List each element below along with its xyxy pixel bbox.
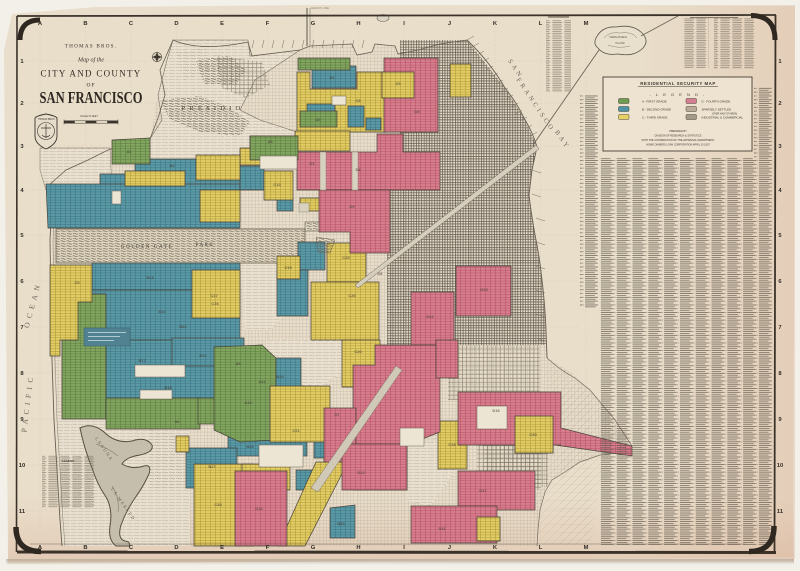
svg-text:D - FOURTH GRADE: D - FOURTH GRADE bbox=[702, 100, 731, 104]
svg-text:A5: A5 bbox=[315, 117, 321, 122]
svg-text:B18: B18 bbox=[164, 385, 172, 390]
svg-text:C13: C13 bbox=[273, 182, 281, 187]
svg-text:PREPARED BY: PREPARED BY bbox=[669, 130, 687, 133]
svg-text:11: 11 bbox=[777, 509, 784, 515]
svg-text:L: L bbox=[539, 545, 543, 551]
svg-text:D7: D7 bbox=[334, 412, 340, 417]
svg-text:10: 10 bbox=[19, 463, 25, 469]
svg-text:GRANT LINE: GRANT LINE bbox=[311, 6, 329, 10]
svg-text:B17: B17 bbox=[138, 358, 146, 363]
svg-text:D: D bbox=[174, 545, 178, 551]
svg-text:(OVER HALF OF AREA): (OVER HALF OF AREA) bbox=[712, 113, 737, 116]
svg-text:D16: D16 bbox=[492, 408, 500, 413]
svg-text:D8: D8 bbox=[355, 167, 361, 172]
svg-text:D12: D12 bbox=[426, 314, 434, 319]
svg-text:D15: D15 bbox=[480, 287, 488, 292]
svg-text:7: 7 bbox=[778, 325, 781, 331]
svg-text:CITY AND COUNTY: CITY AND COUNTY bbox=[41, 69, 142, 79]
svg-text:D10: D10 bbox=[255, 506, 263, 511]
svg-text:B4: B4 bbox=[169, 163, 175, 168]
svg-text:L: L bbox=[539, 21, 543, 27]
svg-text:B: B bbox=[83, 545, 87, 551]
svg-text:H: H bbox=[356, 545, 360, 551]
svg-text:B16: B16 bbox=[158, 309, 166, 314]
svg-text:C19: C19 bbox=[284, 265, 292, 270]
svg-text:PARK: PARK bbox=[196, 243, 214, 248]
svg-text:C9: C9 bbox=[395, 81, 401, 86]
svg-text:THOMAS BROS.: THOMAS BROS. bbox=[65, 44, 117, 50]
svg-text:M: M bbox=[584, 545, 589, 551]
svg-text:C26: C26 bbox=[348, 293, 356, 298]
svg-text:7: 7 bbox=[20, 325, 23, 331]
svg-text:C30: C30 bbox=[529, 432, 537, 437]
svg-text:B26: B26 bbox=[276, 374, 284, 379]
svg-text:B27: B27 bbox=[208, 464, 216, 469]
svg-text:GOLDEN GATE: GOLDEN GATE bbox=[121, 245, 173, 250]
svg-text:INDUSTRIAL & COMMERCIAL: INDUSTRIAL & COMMERCIAL bbox=[702, 116, 744, 120]
svg-text:B33: B33 bbox=[337, 521, 345, 526]
svg-text:A11: A11 bbox=[258, 379, 266, 384]
svg-text:WITH THE COOPERATION OF THE AP: WITH THE COOPERATION OF THE APPRAISAL DE… bbox=[642, 139, 715, 142]
svg-text:B15: B15 bbox=[146, 275, 154, 280]
svg-text:C16: C16 bbox=[211, 301, 219, 306]
svg-text:E: E bbox=[220, 545, 224, 551]
svg-text:G: G bbox=[311, 21, 316, 27]
svg-text:C28: C28 bbox=[448, 442, 456, 447]
svg-text:A3: A3 bbox=[267, 139, 273, 144]
svg-text:11: 11 bbox=[19, 509, 26, 515]
svg-text:M: M bbox=[584, 21, 589, 27]
svg-text:- L E G E N D -: - L E G E N D - bbox=[650, 92, 707, 97]
svg-text:H: H bbox=[356, 21, 360, 27]
svg-text:D1: D1 bbox=[309, 161, 315, 166]
svg-text:D9: D9 bbox=[349, 204, 355, 209]
svg-text:LEGEND: LEGEND bbox=[62, 459, 75, 463]
svg-text:C33: C33 bbox=[214, 502, 222, 507]
svg-text:C21: C21 bbox=[292, 428, 300, 433]
svg-text:G: G bbox=[311, 545, 316, 551]
svg-text:C25: C25 bbox=[342, 255, 350, 260]
svg-text:C20: C20 bbox=[354, 349, 362, 354]
svg-text:C17: C17 bbox=[210, 293, 218, 298]
svg-text:J: J bbox=[448, 21, 451, 27]
svg-text:E: E bbox=[220, 21, 224, 27]
svg-text:B: B bbox=[83, 21, 87, 27]
svg-text:C6: C6 bbox=[74, 280, 80, 285]
svg-text:DIVISION OF RESEARCH & STATIST: DIVISION OF RESEARCH & STATISTICS bbox=[655, 135, 702, 138]
svg-text:SCALE IN FEET: SCALE IN FEET bbox=[80, 115, 98, 118]
svg-text:PRESIDIO: PRESIDIO bbox=[182, 105, 245, 112]
svg-text:J: J bbox=[448, 545, 451, 551]
svg-text:C8: C8 bbox=[355, 98, 361, 103]
svg-text:2: 2 bbox=[20, 101, 23, 107]
svg-text:10: 10 bbox=[777, 463, 783, 469]
svg-text:HOME OWNERS LOAN CORPORATION: HOME OWNERS LOAN CORPORATION APRIL 10 19… bbox=[646, 144, 710, 147]
svg-text:D17: D17 bbox=[479, 488, 487, 493]
svg-text:D: D bbox=[174, 21, 178, 27]
svg-text:D11: D11 bbox=[438, 526, 446, 531]
svg-text:2: 2 bbox=[778, 101, 781, 107]
svg-text:THOMAS BROS: THOMAS BROS bbox=[38, 118, 55, 121]
svg-text:B - SECOND GRADE: B - SECOND GRADE bbox=[642, 108, 671, 112]
svg-text:A13: A13 bbox=[244, 400, 252, 405]
svg-text:D5: D5 bbox=[414, 109, 420, 114]
svg-text:A1: A1 bbox=[126, 149, 132, 154]
svg-text:ISLAND: ISLAND bbox=[615, 41, 624, 45]
svg-text:Map of the: Map of the bbox=[77, 57, 104, 64]
svg-text:A6: A6 bbox=[174, 419, 180, 424]
svg-text:SPARSELY SETTLED: SPARSELY SETTLED bbox=[702, 108, 733, 112]
svg-text:B28: B28 bbox=[246, 444, 254, 449]
svg-text:F: F bbox=[266, 545, 270, 551]
svg-text:A - FIRST GRADE: A - FIRST GRADE bbox=[642, 100, 667, 104]
svg-text:D6: D6 bbox=[377, 271, 383, 276]
svg-text:A9: A9 bbox=[235, 361, 241, 366]
svg-text:YERBA BUENA: YERBA BUENA bbox=[609, 35, 628, 39]
svg-text:B21: B21 bbox=[179, 324, 187, 329]
svg-text:D13: D13 bbox=[357, 470, 365, 475]
svg-text:B22: B22 bbox=[199, 353, 207, 358]
svg-text:C - THIRD GRADE: C - THIRD GRADE bbox=[642, 116, 667, 120]
svg-text:SAN FRANCISCO: SAN FRANCISCO bbox=[40, 88, 143, 107]
svg-text:B1: B1 bbox=[329, 75, 335, 80]
svg-text:RESIDENTIAL SECURITY MAP: RESIDENTIAL SECURITY MAP bbox=[640, 81, 716, 86]
svg-text:F: F bbox=[266, 21, 270, 27]
